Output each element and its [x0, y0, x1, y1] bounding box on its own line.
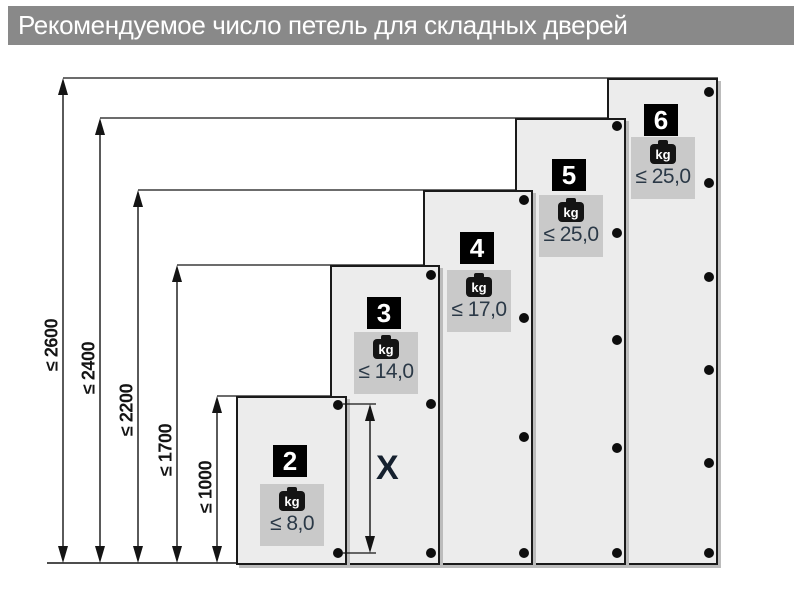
height-limit-label: ≤ 1700 [156, 424, 177, 477]
height-limit-label: ≤ 1000 [196, 461, 217, 514]
diagram-page: Рекомендуемое число петель для складных … [0, 0, 800, 600]
x-dim-label: X [376, 451, 399, 485]
height-limit-label: ≤ 2400 [79, 342, 100, 395]
height-limit-label: ≤ 2200 [117, 384, 138, 437]
labels-layer: ≤ 2600≤ 2400≤ 2200≤ 1700≤ 1000X [0, 0, 800, 600]
height-limit-label: ≤ 2600 [42, 319, 63, 372]
